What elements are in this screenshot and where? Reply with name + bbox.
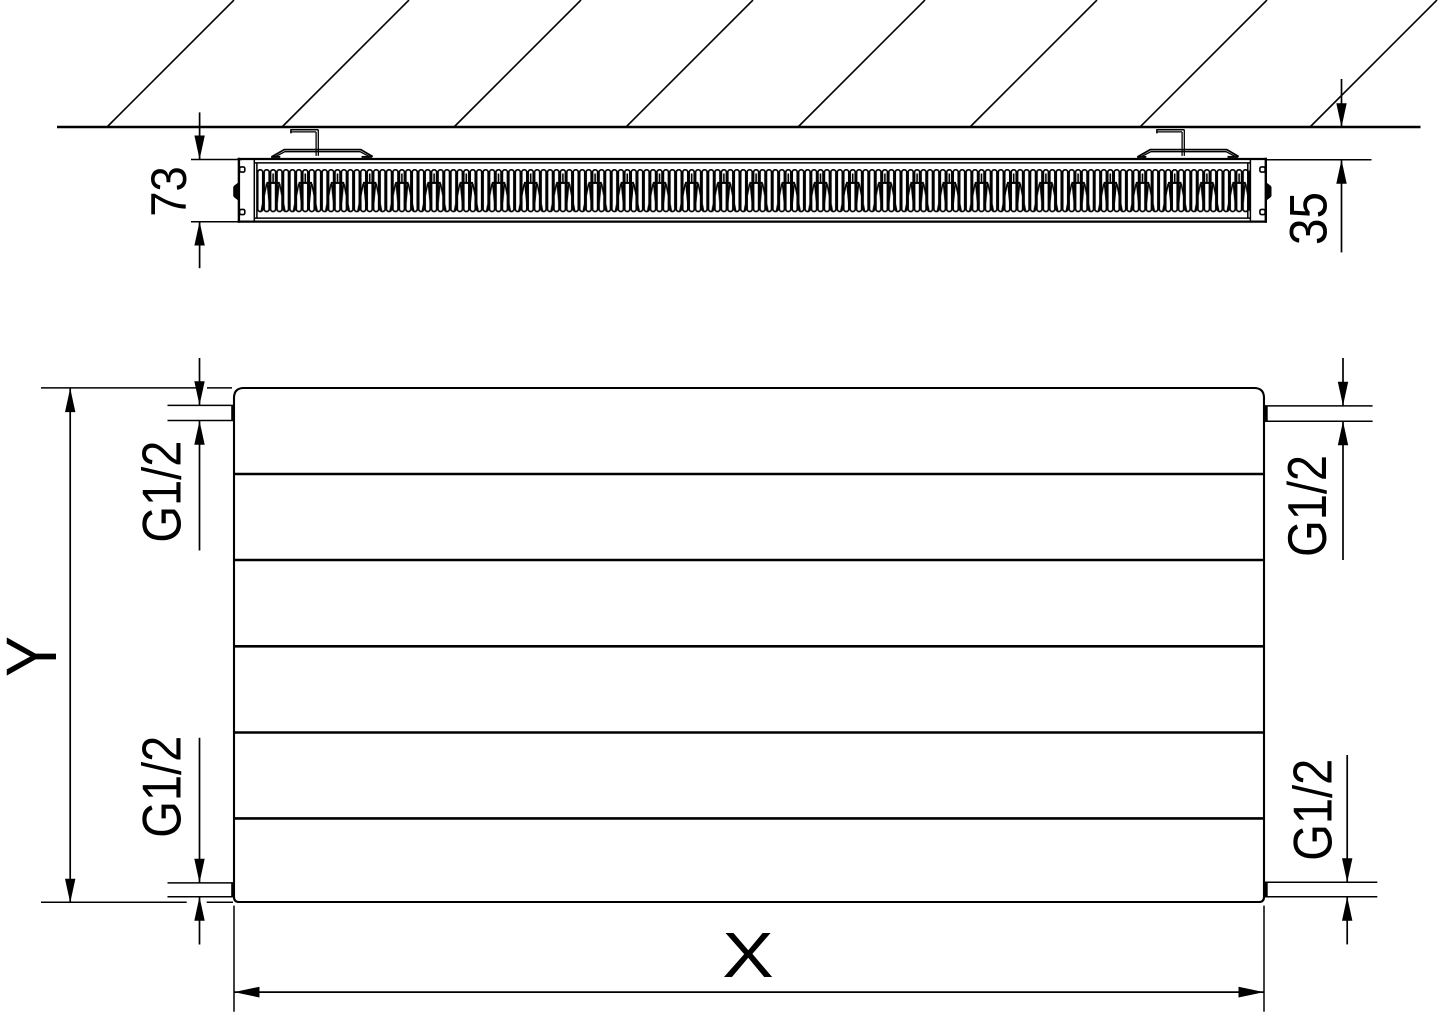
svg-text:Y: Y bbox=[0, 636, 72, 677]
svg-text:G1/2: G1/2 bbox=[131, 736, 193, 838]
svg-text:X: X bbox=[722, 919, 774, 991]
svg-text:35: 35 bbox=[1279, 192, 1338, 245]
svg-text:G1/2: G1/2 bbox=[131, 441, 193, 543]
svg-text:73: 73 bbox=[141, 166, 197, 217]
svg-text:G1/2: G1/2 bbox=[1282, 759, 1344, 861]
svg-text:G1/2: G1/2 bbox=[1276, 455, 1338, 557]
